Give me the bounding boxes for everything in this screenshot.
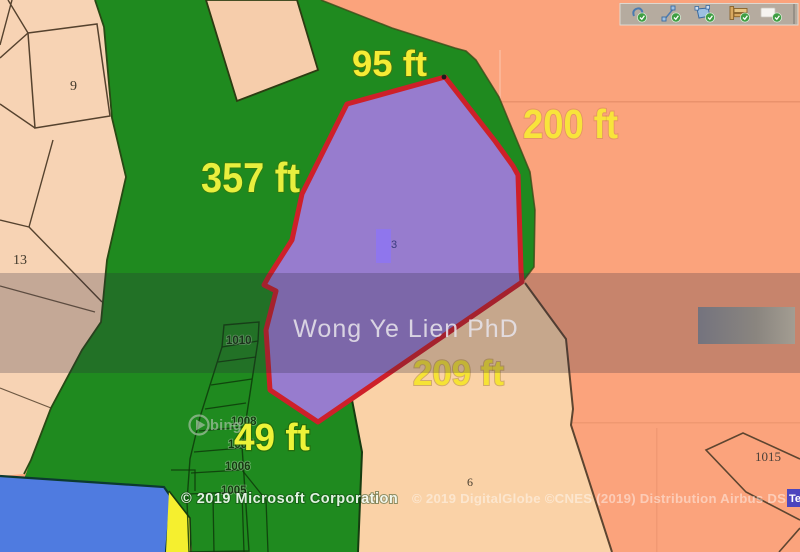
- svg-text:© 2019 Microsoft Corporation: © 2019 Microsoft Corporation: [181, 491, 398, 507]
- svg-text:3: 3: [391, 239, 397, 251]
- svg-text:© 2019 DigitalGlobe ©CNES (201: © 2019 DigitalGlobe ©CNES (2019) Distrib…: [412, 491, 786, 506]
- svg-text:9: 9: [70, 79, 77, 94]
- svg-text:357 ft: 357 ft: [201, 154, 300, 201]
- svg-text:13: 13: [13, 253, 27, 268]
- svg-text:Wong Ye Lien PhD: Wong Ye Lien PhD: [293, 315, 518, 343]
- svg-text:49 ft: 49 ft: [234, 417, 310, 459]
- svg-text:95 ft: 95 ft: [352, 43, 427, 84]
- svg-text:bing: bing: [210, 418, 242, 434]
- svg-text:6: 6: [467, 475, 473, 489]
- svg-text:Te: Te: [789, 493, 800, 505]
- svg-text:1015: 1015: [755, 449, 781, 464]
- svg-text:1006: 1006: [225, 461, 251, 473]
- svg-text:200 ft: 200 ft: [523, 101, 618, 147]
